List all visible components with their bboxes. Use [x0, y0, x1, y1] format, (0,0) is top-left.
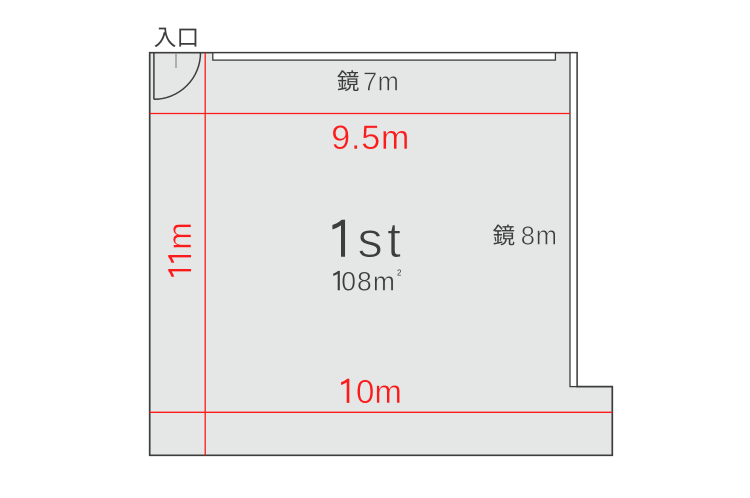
svg-text:0m: 0m	[356, 373, 402, 410]
svg-text:7m: 7m	[363, 69, 399, 97]
svg-text:08m2: 08m2	[341, 266, 402, 296]
svg-text:m: m	[161, 222, 198, 250]
svg-text:st: st	[358, 211, 406, 268]
svg-text:9.5m: 9.5m	[331, 119, 410, 157]
svg-text:8m: 8m	[521, 223, 558, 251]
